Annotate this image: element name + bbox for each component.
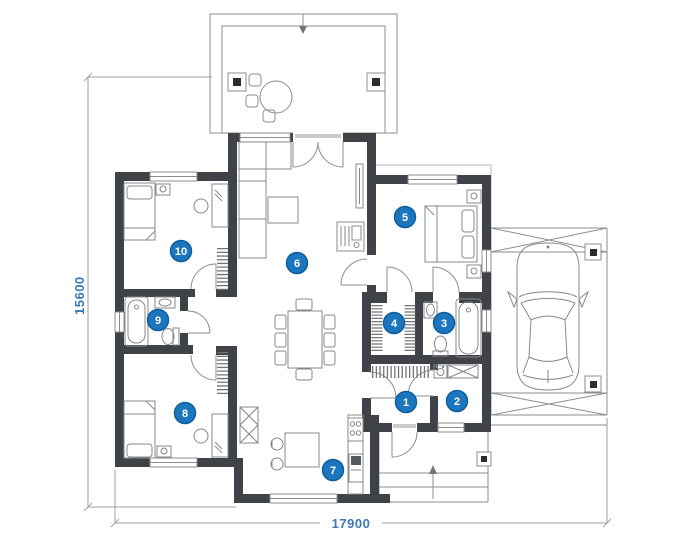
- room-marker-9: 9: [148, 310, 169, 331]
- window-icon: [482, 310, 491, 332]
- eaves-line: [371, 165, 491, 228]
- sink-icon: [424, 302, 437, 318]
- chair-icon: [271, 438, 283, 470]
- cabinet-icon: [240, 407, 258, 443]
- post-icon: [585, 376, 601, 392]
- nightstand-icon: [156, 184, 170, 195]
- nightstand-icon: [467, 265, 481, 278]
- room-2-fixtures: [434, 365, 478, 378]
- door-arc-icon: [392, 432, 417, 457]
- room-marker-5: 5: [395, 207, 416, 228]
- shaft-icon: [448, 365, 478, 378]
- window-icon: [482, 250, 491, 272]
- terrace-arrow-icon: [299, 14, 307, 34]
- svg-text:9: 9: [155, 315, 161, 327]
- post-icon: [477, 452, 491, 466]
- window-icon: [150, 172, 197, 181]
- window-icon: [408, 175, 457, 184]
- living-room-furniture: [239, 142, 364, 258]
- car-icon: [508, 243, 588, 390]
- door-arc-icon: [191, 264, 216, 289]
- svg-text:4: 4: [391, 318, 398, 330]
- sink-icon: [155, 297, 175, 308]
- desk-chair-icon: [194, 199, 208, 213]
- svg-text:3: 3: [441, 318, 447, 330]
- room-10-furniture: [124, 183, 228, 240]
- room-5-furniture: [425, 190, 481, 278]
- door-arc-icon: [387, 267, 412, 292]
- desk-chair-icon: [194, 429, 208, 443]
- floor-plan-canvas: 15600 17900 1 2 3 4 5 6: [0, 0, 700, 560]
- svg-text:2: 2: [454, 396, 460, 408]
- svg-text:5: 5: [402, 212, 408, 224]
- svg-text:1: 1: [403, 397, 409, 409]
- window-icon: [240, 133, 290, 142]
- kitchen-furniture: [271, 415, 363, 494]
- bed-icon: [124, 183, 155, 240]
- desk-icon: [194, 184, 228, 227]
- door-arc-icon: [370, 372, 396, 398]
- stove-icon: [348, 418, 363, 441]
- kitchen-table-icon: [285, 433, 319, 467]
- svg-text:7: 7: [330, 465, 336, 477]
- dimension-width-label: 17900: [332, 516, 371, 531]
- bathtub-icon: [125, 297, 148, 346]
- dining-table-icon: [288, 311, 322, 368]
- window-icon: [438, 423, 464, 432]
- fireplace-icon: [337, 222, 364, 251]
- fridge-icon: [349, 454, 363, 482]
- round-table-icon: [260, 81, 292, 113]
- post-icon: [585, 244, 601, 260]
- window-icon: [150, 458, 197, 467]
- window-icon: [270, 494, 337, 503]
- desk-icon: [194, 414, 228, 457]
- dining-set: [240, 299, 335, 443]
- nightstand-icon: [157, 446, 171, 457]
- terrace-door-sill: [295, 134, 341, 138]
- door-arc-icon: [341, 259, 367, 285]
- bed-icon: [124, 401, 155, 458]
- toilet-icon: [162, 328, 179, 345]
- floor-plan: 15600 17900 1 2 3 4 5 6: [0, 0, 700, 560]
- terrace: [210, 14, 397, 133]
- room-marker-1: 1: [396, 392, 417, 413]
- svg-text:10: 10: [175, 246, 187, 258]
- post-icon: [228, 73, 246, 91]
- room-marker-2: 2: [447, 391, 468, 412]
- room-marker-4: 4: [384, 313, 405, 334]
- nightstand-icon: [467, 190, 481, 203]
- carport: [491, 228, 607, 425]
- coffee-table-icon: [268, 197, 298, 223]
- room-marker-7: 7: [323, 460, 344, 481]
- door-arc-icon: [188, 311, 210, 333]
- dimension-height-label: 15600: [72, 276, 87, 315]
- room-marker-10: 10: [171, 241, 192, 262]
- svg-text:6: 6: [294, 258, 300, 270]
- bathtub-icon: [456, 299, 481, 357]
- tv-icon: [356, 164, 363, 208]
- door-arc-icon: [293, 142, 343, 167]
- toilet-icon: [433, 336, 448, 356]
- room-marker-6: 6: [287, 253, 308, 274]
- room-marker-8: 8: [175, 403, 196, 424]
- post-icon: [367, 73, 385, 91]
- svg-text:8: 8: [182, 408, 188, 420]
- sofa-icon: [239, 142, 291, 258]
- door-arc-icon: [433, 267, 459, 292]
- bed-icon: [425, 206, 477, 262]
- porch: [379, 432, 491, 502]
- entry-door-sill: [393, 424, 416, 428]
- room-marker-3: 3: [434, 313, 455, 334]
- entry-arrow-icon: [429, 465, 437, 499]
- door-arc-icon: [191, 355, 216, 380]
- window-icon: [115, 312, 124, 332]
